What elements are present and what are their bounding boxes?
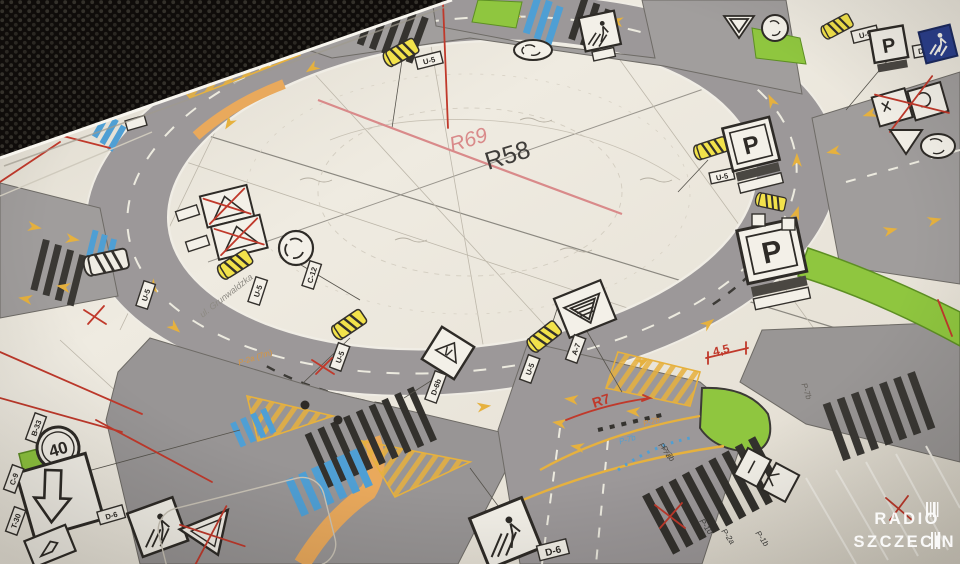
watermark-line1: RADIO — [874, 510, 940, 528]
watermark-line2: SZCZECIN — [854, 533, 957, 551]
plan-drawing: P-2b P-7b P-7b P-7a P-10 P-2a P-1b P-7b … — [0, 0, 960, 564]
photo-of-roundabout-plan: P-2b P-7b P-7b P-7a P-10 P-2a P-1b P-7b … — [0, 0, 960, 564]
